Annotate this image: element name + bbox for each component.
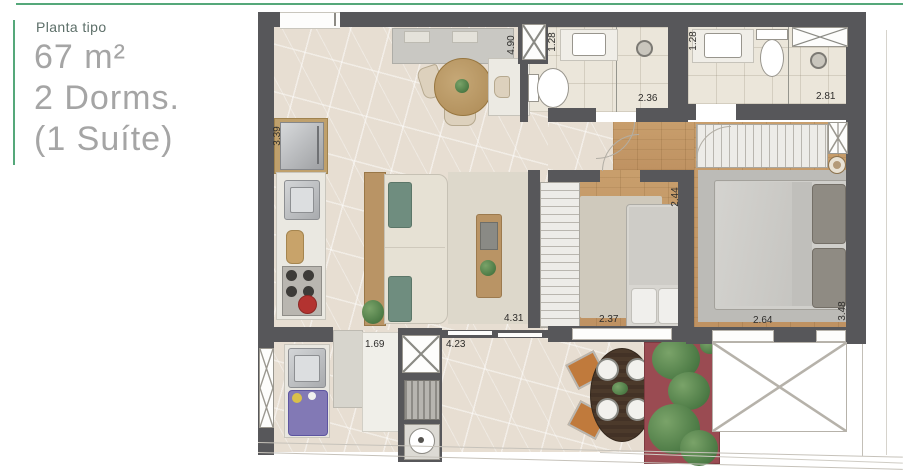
side-accent-line [13, 20, 15, 165]
place-setting-plate [596, 358, 619, 381]
dim-suite-side: 3.48 [838, 301, 848, 320]
wall-bottom-left [258, 327, 333, 342]
wall-bath1-south-b [636, 108, 668, 122]
wall-top [260, 12, 866, 27]
table-centerpiece-plant [455, 79, 469, 93]
washer-knob [308, 392, 316, 400]
shaft-x-icon [523, 25, 545, 59]
bed2-window [572, 328, 672, 340]
neighbor-boundary-line [886, 30, 887, 455]
bath1-sink-basin [572, 33, 606, 56]
dim-living-bottom: 4.31 [504, 314, 523, 324]
wall-right [846, 12, 866, 344]
cross-box-icon [829, 123, 847, 153]
stove-burner [303, 270, 314, 281]
fridge-handle [317, 126, 319, 164]
dim-bath1-door: 1.28 [548, 32, 558, 51]
plan-suite: (1 Suíte) [34, 119, 180, 160]
bath2-sink-basin [704, 33, 742, 58]
bath2-shower-glass [788, 27, 789, 104]
window-x-icon [793, 28, 847, 46]
wall-bath2-south-a [688, 104, 696, 120]
sliding-door-panel [448, 331, 492, 335]
red-kettle [298, 295, 317, 314]
dim-kitchen-side: 3.39 [273, 126, 283, 145]
dim-bed2-door: 2.44 [671, 187, 681, 206]
bath2-toilet-bowl [760, 39, 784, 77]
bath2-shower-head [810, 52, 827, 69]
cutting-board [286, 230, 304, 264]
sofa-pillow [388, 276, 412, 322]
suite-pillow [812, 248, 846, 308]
table-plant-decor [612, 382, 628, 395]
wall-bath2-south-b [736, 104, 846, 120]
suite-ac-x [828, 122, 848, 154]
dim-bed2-width: 2.37 [599, 315, 618, 325]
plan-subtitle: Planta tipo [36, 19, 107, 35]
terrace-x-icon [713, 343, 846, 431]
shaft-x-window [522, 24, 546, 60]
sofa-seat-split [385, 247, 445, 248]
suite-window-small [816, 330, 846, 342]
entrance-door-leaf [334, 13, 336, 26]
planter-plant [680, 430, 718, 466]
dim-bath2-door: 1.28 [689, 31, 699, 50]
place-setting-plate [596, 398, 619, 421]
plan-area: 67 m² [34, 37, 180, 78]
dim-suite-width: 2.64 [753, 316, 772, 326]
bath1-shower-head [636, 40, 653, 57]
suite-bed-blanket [716, 182, 792, 306]
dim-bath2-width: 2.81 [816, 92, 835, 102]
suite-nightstand-lamp [828, 156, 846, 174]
bath2-window-x [792, 27, 848, 47]
wall-living-bed2 [528, 170, 540, 328]
shaft-x-icon [403, 336, 439, 372]
bedroom2-blanket [629, 207, 683, 285]
suite-bed-runner [792, 182, 812, 306]
plan-dorms: 2 Dorms. [34, 78, 180, 119]
sofa-pillow [388, 182, 412, 228]
floor-plant [362, 300, 384, 324]
top-accent-line [16, 3, 903, 5]
sliding-door-panel [498, 333, 542, 337]
sideboard-item [404, 31, 430, 43]
wall-bath1-south-a [548, 108, 596, 122]
dryer-unit [404, 380, 440, 420]
suite-pillow [812, 184, 846, 244]
washer-flower-decor [292, 393, 302, 403]
window-x-icon [260, 349, 273, 427]
terrace-side-line [862, 344, 863, 456]
service-counter-strip [333, 330, 363, 408]
wall-bath1-west [520, 62, 528, 122]
floor-plan-page: Planta tipo 67 m² 2 Dorms. (1 Suíte) [0, 0, 903, 473]
bedroom2-pillow [631, 288, 657, 324]
dim-balcony-width: 4.23 [446, 340, 465, 350]
stove-burner [286, 286, 297, 297]
wall-bed2-north-a [548, 170, 600, 182]
bath1-toilet-bowl [537, 68, 569, 108]
kitchen-sink-basin [290, 187, 314, 213]
sideboard-item [452, 31, 478, 43]
dim-living-top: 4.90 [507, 35, 517, 54]
bedroom2-wardrobe [540, 182, 580, 328]
terrace-x-area [712, 342, 847, 432]
dim-service-width: 1.69 [365, 340, 384, 350]
desk-chair [494, 76, 510, 98]
entrance-door-opening [280, 12, 340, 29]
dim-bath1-width: 2.36 [638, 94, 657, 104]
service-basin-drain [418, 437, 424, 443]
wall-bath-divider [668, 12, 688, 122]
wall-bed2-north-b [640, 170, 686, 182]
service-shaft-x [402, 335, 440, 373]
plan-title-block: 67 m² 2 Dorms. (1 Suíte) [34, 37, 180, 159]
laundry-sink-basin [294, 355, 320, 382]
left-wall-window [259, 348, 274, 428]
stove-burner [286, 270, 297, 281]
suite-window [712, 330, 774, 342]
coffee-table-plant [480, 260, 496, 276]
coffee-table-tray [480, 222, 498, 250]
